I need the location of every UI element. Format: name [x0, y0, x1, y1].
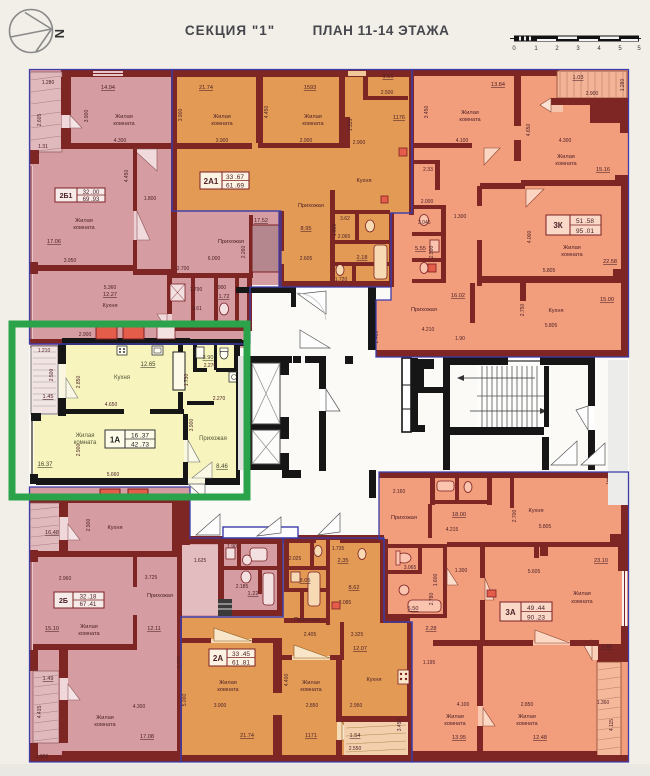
svg-text:1.535: 1.535: [348, 119, 354, 132]
svg-text:22.58: 22.58: [603, 259, 617, 265]
svg-text:1.280: 1.280: [42, 80, 55, 86]
svg-text:Жилая: Жилая: [80, 624, 98, 630]
svg-text:Жилая: Жилая: [461, 110, 479, 116]
svg-text:2.850: 2.850: [76, 376, 82, 389]
svg-text:5.805: 5.805: [539, 524, 552, 530]
svg-text:2.750: 2.750: [520, 304, 526, 317]
svg-text:4.650: 4.650: [105, 402, 118, 408]
svg-text:2.160: 2.160: [393, 489, 406, 495]
svg-text:2Б: 2Б: [59, 598, 68, 605]
svg-text:1171: 1171: [305, 733, 317, 739]
svg-text:90 .23: 90 .23: [527, 615, 545, 622]
svg-text:16.02: 16.02: [451, 293, 465, 299]
svg-text:1.735: 1.735: [332, 546, 345, 552]
svg-text:3А: 3А: [505, 608, 515, 617]
svg-text:3.900: 3.900: [216, 138, 229, 144]
svg-text:5.000: 5.000: [182, 694, 188, 707]
svg-text:21.74: 21.74: [240, 733, 254, 739]
svg-text:комната: комната: [94, 722, 116, 728]
svg-text:1593: 1593: [304, 85, 316, 91]
svg-text:33 .45: 33 .45: [232, 651, 250, 658]
svg-text:13.95: 13.95: [452, 735, 466, 741]
svg-text:3.900: 3.900: [178, 109, 184, 122]
svg-text:5.805: 5.805: [543, 268, 556, 274]
svg-text:3.725: 3.725: [145, 575, 158, 581]
svg-text:2.900: 2.900: [300, 138, 313, 144]
svg-text:4.400: 4.400: [284, 674, 290, 687]
svg-text:2Б1: 2Б1: [60, 193, 73, 200]
svg-text:2.025: 2.025: [289, 556, 302, 562]
svg-text:1.800: 1.800: [144, 196, 157, 202]
svg-text:61 .69: 61 .69: [226, 183, 244, 190]
svg-text:Жилая: Жилая: [302, 680, 320, 686]
svg-text:комната: комната: [217, 687, 239, 693]
svg-text:17.08: 17.08: [140, 734, 154, 740]
svg-text:1.790: 1.790: [190, 287, 203, 293]
svg-text:комната: комната: [300, 687, 322, 693]
svg-text:комната: комната: [444, 721, 466, 727]
svg-text:Кухня: Кухня: [103, 303, 118, 309]
svg-text:12.11: 12.11: [147, 626, 161, 632]
svg-text:2.405: 2.405: [304, 632, 317, 638]
svg-text:1.03: 1.03: [573, 75, 584, 81]
svg-text:Жилая: Жилая: [518, 714, 536, 720]
svg-text:3.325: 3.325: [351, 632, 364, 638]
svg-text:Прихожая: Прихожая: [411, 307, 437, 313]
svg-text:2.605: 2.605: [37, 114, 43, 127]
svg-text:14.94: 14.94: [101, 85, 115, 91]
svg-text:15.16: 15.16: [596, 167, 610, 173]
svg-text:комната: комната: [211, 121, 233, 127]
svg-text:комната: комната: [555, 161, 577, 167]
svg-text:3.450: 3.450: [397, 719, 403, 732]
svg-text:51 .58: 51 .58: [576, 218, 594, 225]
svg-text:2.270: 2.270: [204, 363, 217, 369]
svg-text:12.65: 12.65: [140, 362, 156, 368]
svg-text:4.650: 4.650: [526, 124, 532, 137]
svg-text:2.700: 2.700: [177, 266, 190, 272]
svg-text:комната: комната: [113, 121, 135, 127]
svg-text:Жилая: Жилая: [75, 218, 93, 224]
svg-text:1.210: 1.210: [38, 348, 51, 354]
svg-text:комната: комната: [78, 631, 100, 637]
svg-text:1.730: 1.730: [184, 374, 190, 387]
svg-text:2.850: 2.850: [306, 703, 319, 709]
svg-text:1.54: 1.54: [350, 733, 361, 739]
svg-text:3.62: 3.62: [340, 216, 350, 222]
svg-text:Прихожая: Прихожая: [147, 593, 173, 599]
svg-text:8.95: 8.95: [301, 226, 312, 232]
svg-text:2.700: 2.700: [512, 510, 518, 523]
svg-text:12.48: 12.48: [533, 735, 547, 741]
svg-text:2.18: 2.18: [357, 255, 368, 261]
svg-text:16.37: 16.37: [37, 462, 53, 468]
svg-text:8.05: 8.05: [300, 578, 311, 584]
svg-text:2.780: 2.780: [429, 593, 435, 606]
svg-text:Жилая: Жилая: [446, 714, 464, 720]
svg-text:3.900: 3.900: [189, 419, 195, 432]
svg-text:5.605: 5.605: [528, 569, 541, 575]
svg-text:1.600: 1.600: [332, 224, 338, 237]
svg-text:16 .37: 16 .37: [131, 433, 149, 440]
svg-text:42 .73: 42 .73: [131, 442, 149, 449]
svg-text:Кухня: Кухня: [114, 375, 130, 381]
svg-text:4.415: 4.415: [37, 706, 43, 719]
svg-text:1.72: 1.72: [219, 294, 230, 300]
svg-text:2.900: 2.900: [353, 140, 366, 146]
svg-text:Кухня: Кухня: [367, 677, 382, 683]
svg-text:2.000: 2.000: [421, 199, 434, 205]
svg-text:5.50: 5.50: [408, 606, 419, 612]
svg-text:8.46: 8.46: [216, 464, 228, 470]
svg-text:1.360: 1.360: [597, 700, 610, 706]
svg-text:4.115: 4.115: [609, 719, 615, 731]
svg-text:15.00: 15.00: [600, 297, 614, 303]
svg-text:23.10: 23.10: [594, 558, 608, 564]
svg-text:Кухня: Кухня: [549, 308, 564, 314]
svg-text:32 .18: 32 .18: [80, 595, 97, 601]
svg-text:1.90: 1.90: [227, 544, 237, 550]
svg-text:1.300: 1.300: [454, 214, 467, 220]
svg-text:Прихожая: Прихожая: [218, 239, 244, 245]
svg-text:2.185: 2.185: [236, 584, 249, 590]
svg-text:17.52: 17.52: [254, 218, 268, 224]
svg-text:3.950: 3.950: [64, 258, 77, 264]
svg-text:4.450: 4.450: [124, 170, 130, 183]
svg-text:61 .81: 61 .81: [232, 660, 250, 667]
svg-text:4.100: 4.100: [456, 138, 469, 144]
svg-text:3.450: 3.450: [424, 106, 430, 119]
svg-text:2.950: 2.950: [350, 703, 363, 709]
svg-text:2.960: 2.960: [59, 576, 72, 582]
svg-text:комната: комната: [516, 721, 538, 727]
svg-text:18.00: 18.00: [452, 512, 466, 518]
svg-text:21.74: 21.74: [199, 85, 213, 91]
svg-text:3К: 3К: [553, 221, 562, 230]
svg-text:4.100: 4.100: [177, 656, 183, 669]
svg-text:N: N: [52, 29, 67, 38]
svg-text:6.000: 6.000: [208, 256, 221, 262]
svg-text:1А: 1А: [110, 436, 120, 445]
svg-text:5.805: 5.805: [545, 323, 558, 329]
svg-text:69 .93: 69 .93: [83, 197, 100, 203]
svg-text:4.300: 4.300: [114, 138, 127, 144]
svg-text:2.900: 2.900: [76, 444, 82, 457]
svg-text:15.10: 15.10: [45, 626, 59, 632]
svg-text:2А: 2А: [213, 654, 223, 663]
svg-text:32 .00: 32 .00: [83, 190, 100, 196]
svg-text:1.195: 1.195: [423, 660, 436, 666]
svg-text:Жилая: Жилая: [96, 715, 114, 721]
svg-text:комната: комната: [459, 117, 481, 123]
svg-text:Кухня: Кухня: [108, 525, 123, 531]
svg-text:17.06: 17.06: [47, 239, 61, 245]
svg-text:3.900: 3.900: [214, 703, 227, 709]
svg-text:1.300: 1.300: [455, 568, 468, 574]
svg-text:5.55: 5.55: [415, 246, 426, 252]
svg-text:1.49: 1.49: [43, 676, 54, 682]
svg-text:Прихожая: Прихожая: [199, 436, 227, 442]
svg-text:4.215: 4.215: [446, 527, 459, 533]
svg-text:2.900: 2.900: [586, 91, 599, 97]
svg-text:1.720: 1.720: [335, 277, 348, 283]
svg-text:Жилая: Жилая: [76, 433, 95, 439]
svg-text:13.84: 13.84: [491, 82, 505, 88]
svg-text:2.900: 2.900: [79, 332, 92, 338]
svg-text:ПЛАН 11-14 ЭТАЖА: ПЛАН 11-14 ЭТАЖА: [313, 23, 450, 38]
svg-text:4.000: 4.000: [527, 231, 533, 244]
svg-text:Жилая: Жилая: [557, 154, 575, 160]
svg-text:1.625: 1.625: [194, 558, 207, 564]
svg-text:Прихожая: Прихожая: [298, 203, 324, 209]
svg-text:12.27: 12.27: [103, 292, 117, 298]
svg-text:комната: комната: [73, 225, 95, 231]
svg-text:2.28: 2.28: [426, 626, 437, 632]
svg-text:3.61: 3.61: [192, 306, 202, 312]
svg-text:Жилая: Жилая: [115, 114, 133, 120]
svg-text:Прихожая: Прихожая: [294, 617, 320, 623]
svg-text:3.900: 3.900: [84, 110, 90, 123]
svg-text:2.270: 2.270: [213, 396, 226, 402]
svg-text:2.085: 2.085: [339, 600, 352, 606]
svg-text:8.62: 8.62: [349, 585, 360, 591]
svg-text:Жилая: Жилая: [563, 245, 581, 251]
svg-text:2.260: 2.260: [241, 246, 247, 259]
svg-text:4.300: 4.300: [133, 704, 146, 710]
svg-text:Жилая: Жилая: [219, 680, 237, 686]
svg-text:4.100: 4.100: [457, 702, 470, 708]
svg-text:4.300: 4.300: [559, 138, 572, 144]
svg-text:1.360: 1.360: [36, 754, 49, 760]
svg-text:12.07: 12.07: [353, 646, 367, 652]
svg-text:33 .67: 33 .67: [226, 174, 244, 181]
svg-text:16.48: 16.48: [45, 530, 59, 536]
svg-text:2.065: 2.065: [338, 234, 351, 240]
svg-text:3.045: 3.045: [418, 220, 431, 226]
svg-text:3.065: 3.065: [404, 565, 417, 571]
svg-text:комната: комната: [571, 599, 593, 605]
svg-text:2.500: 2.500: [381, 90, 394, 96]
svg-text:1.600: 1.600: [433, 574, 439, 587]
svg-text:2.900: 2.900: [86, 519, 92, 532]
svg-text:1.280: 1.280: [620, 79, 626, 92]
svg-text:1.51: 1.51: [383, 74, 394, 80]
svg-text:2А1: 2А1: [204, 177, 219, 186]
svg-text:49 .44: 49 .44: [527, 605, 545, 612]
svg-text:4.450: 4.450: [264, 106, 270, 119]
svg-text:900: 900: [218, 285, 227, 291]
svg-text:комната: комната: [561, 252, 583, 258]
svg-text:2.550: 2.550: [349, 746, 362, 752]
svg-text:5.660: 5.660: [107, 472, 120, 478]
svg-text:1.31: 1.31: [38, 144, 48, 150]
svg-text:Жилая: Жилая: [213, 114, 231, 120]
svg-text:1176: 1176: [393, 115, 405, 121]
svg-text:2.33: 2.33: [423, 167, 433, 173]
svg-text:СЕКЦИЯ "1": СЕКЦИЯ "1": [185, 23, 275, 38]
svg-text:95 .01: 95 .01: [576, 228, 594, 235]
svg-text:1.62: 1.62: [602, 644, 613, 650]
svg-text:2.850: 2.850: [521, 702, 534, 708]
svg-text:Жилая: Жилая: [573, 591, 591, 597]
svg-text:2.500: 2.500: [429, 246, 435, 259]
svg-text:Кухня: Кухня: [357, 178, 372, 184]
svg-text:Прихожая: Прихожая: [391, 515, 417, 521]
svg-text:1.90: 1.90: [455, 336, 465, 342]
svg-text:1.45: 1.45: [43, 394, 54, 400]
svg-text:2.605: 2.605: [300, 256, 313, 262]
svg-text:5.360: 5.360: [104, 285, 117, 291]
svg-text:67 .41: 67 .41: [80, 602, 97, 608]
svg-text:2.35: 2.35: [338, 558, 349, 564]
svg-text:3.90: 3.90: [203, 355, 214, 361]
svg-text:2.500: 2.500: [49, 369, 55, 382]
svg-text:Кухня: Кухня: [529, 508, 544, 514]
svg-text:4.210: 4.210: [422, 327, 435, 333]
svg-text:Жилая: Жилая: [304, 114, 322, 120]
svg-text:1.22: 1.22: [248, 591, 259, 597]
svg-text:комната: комната: [302, 121, 324, 127]
